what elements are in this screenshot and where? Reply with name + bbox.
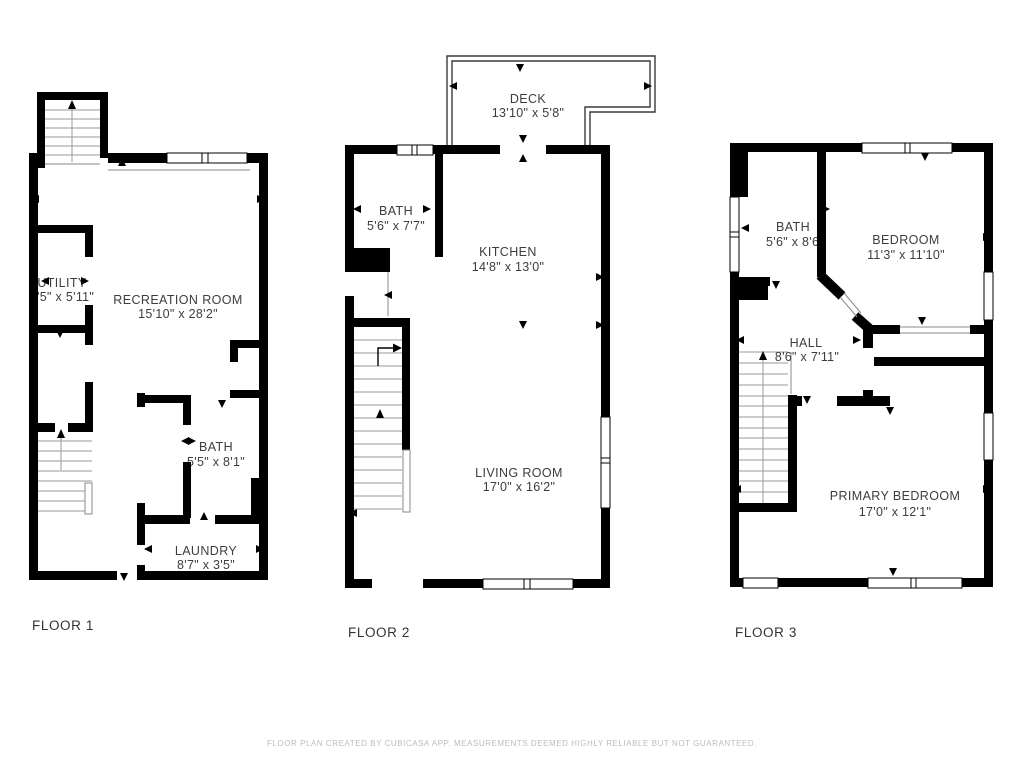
floor-1-label: FLOOR 1 [32, 618, 94, 633]
floor-plan-canvas: UTILITY 3'5" x 5'11" RECREATION ROOM 15'… [0, 0, 1024, 768]
room-dims-deck: 13'10" x 5'8" [492, 106, 564, 120]
room-dims-bath1: 5'5" x 8'1" [187, 455, 245, 469]
floor2-bath-window [397, 145, 433, 155]
deck-outline [447, 56, 655, 145]
floor3-right-window-lower [984, 413, 993, 460]
room-label-laundry: LAUNDRY [175, 544, 238, 558]
room-label-primary: PRIMARY BEDROOM [830, 489, 961, 503]
floor2-bottom-window [483, 579, 573, 589]
room-dims-bath2: 5'6" x 7'7" [367, 219, 425, 233]
stair-handrail [85, 483, 92, 514]
floor-2-plan: DECK 13'10" x 5'8" BATH 5'6" x 7'7" KITC… [345, 56, 655, 640]
floor-3-plan: BATH 5'6" x 8'6" BEDROOM 11'3" x 11'10" … [730, 143, 993, 640]
room-dims-utility: 3'5" x 5'11" [30, 290, 94, 304]
floor3-top-window [862, 143, 952, 153]
floor3-right-window-upper [984, 272, 993, 320]
room-dims-living: 17'0" x 16'2" [483, 480, 555, 494]
room-dims-recreation: 15'10" x 28'2" [138, 307, 218, 321]
room-dims-hall: 8'6" x 7'11" [775, 350, 839, 364]
room-label-bath2: BATH [379, 204, 413, 218]
room-label-bath3: BATH [776, 220, 810, 234]
room-label-recreation: RECREATION ROOM [113, 293, 242, 307]
floor3-walls [730, 143, 993, 587]
floor1-upper-stairs [45, 100, 100, 164]
footer-disclaimer: FLOOR PLAN CREATED BY CUBICASA APP. MEAS… [267, 739, 757, 748]
floor2-stairs [354, 272, 402, 509]
stair-handrail [403, 450, 410, 512]
stairs-direction-arrow-icon [393, 344, 402, 353]
floor3-stairs [739, 351, 791, 503]
closet-opening [900, 327, 970, 333]
floor-1-plan: UTILITY 3'5" x 5'11" RECREATION ROOM 15'… [29, 92, 268, 633]
stairs-up-arrow-icon [57, 429, 65, 438]
floor-plan-svg: UTILITY 3'5" x 5'11" RECREATION ROOM 15'… [0, 0, 1024, 768]
room-label-kitchen: KITCHEN [479, 245, 537, 259]
room-dims-laundry: 8'7" x 3'5" [177, 558, 235, 572]
room-dims-primary: 17'0" x 12'1" [859, 505, 931, 519]
room-dims-bath3: 5'6" x 8'6" [766, 235, 824, 249]
floor1-lower-stairs [38, 429, 92, 511]
floor3-bath-window [730, 197, 739, 272]
room-dims-kitchen: 14'8" x 13'0" [472, 260, 544, 274]
room-label-deck: DECK [510, 92, 547, 106]
floor-3-label: FLOOR 3 [735, 625, 797, 640]
room-label-hall: HALL [790, 336, 823, 350]
room-label-bedroom: BEDROOM [872, 233, 939, 247]
floor3-bottom-window-left [743, 578, 778, 588]
stairs-up-arrow-icon [68, 100, 76, 109]
floor2-right-window [601, 417, 610, 508]
floor-2-label: FLOOR 2 [348, 625, 410, 640]
floor1-walls [29, 92, 268, 580]
room-label-utility: UTILITY [37, 276, 87, 290]
floor1-top-window [167, 153, 247, 163]
room-label-bath1: BATH [199, 440, 233, 454]
room-label-living: LIVING ROOM [475, 466, 563, 480]
stairs-up-arrow-icon [376, 409, 384, 418]
floor3-bottom-window-right [868, 578, 962, 588]
room-dims-bedroom: 11'3" x 11'10" [867, 248, 945, 262]
